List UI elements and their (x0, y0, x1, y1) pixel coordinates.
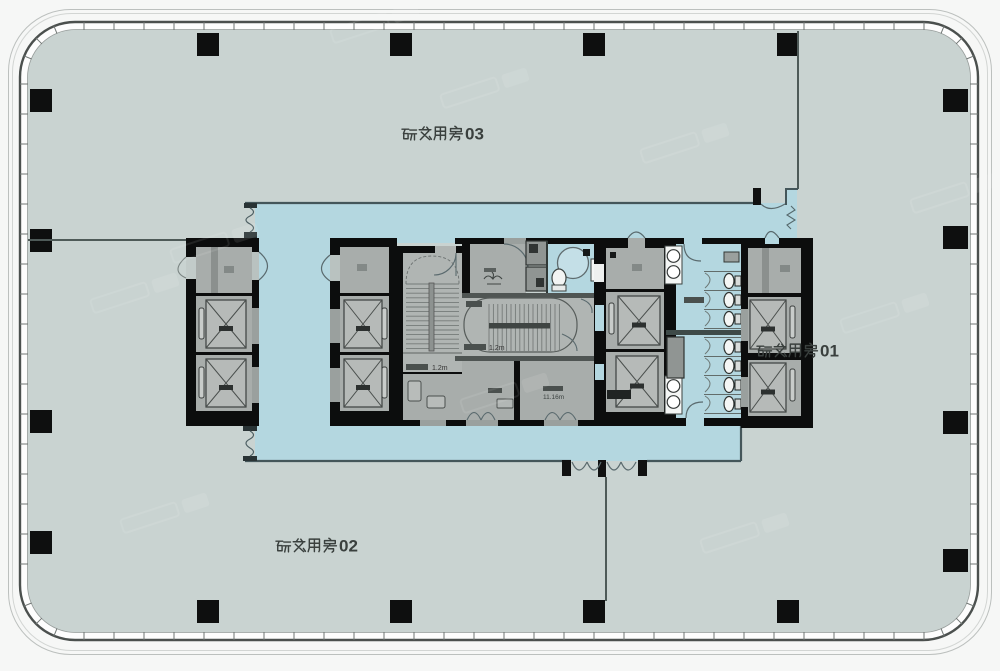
svg-text:03: 03 (465, 125, 484, 144)
svg-text:11.16m: 11.16m (543, 394, 564, 401)
svg-text:02: 02 (339, 537, 358, 556)
svg-text:1.2m: 1.2m (432, 365, 448, 372)
svg-text:01: 01 (820, 342, 839, 361)
svg-text:1.2m: 1.2m (489, 345, 505, 352)
